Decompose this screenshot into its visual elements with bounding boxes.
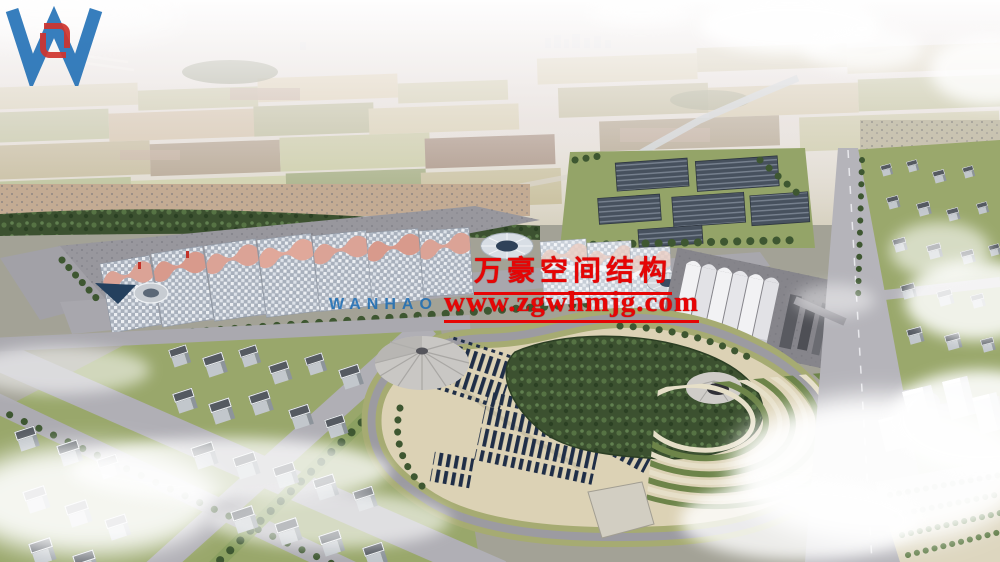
disc-building bbox=[134, 283, 168, 303]
logo-caption: WANHAO bbox=[329, 296, 438, 314]
watermark-logo bbox=[0, 0, 110, 86]
logo-w-icon bbox=[12, 10, 96, 72]
website-watermark: www.zgwhmjg.com bbox=[444, 286, 699, 323]
greenhouse-field bbox=[560, 148, 815, 250]
cone-canopy-left bbox=[375, 336, 469, 390]
rendering-canvas: WANHAO 万豪空间结构 www.zgwhmjg.com bbox=[0, 0, 1000, 562]
